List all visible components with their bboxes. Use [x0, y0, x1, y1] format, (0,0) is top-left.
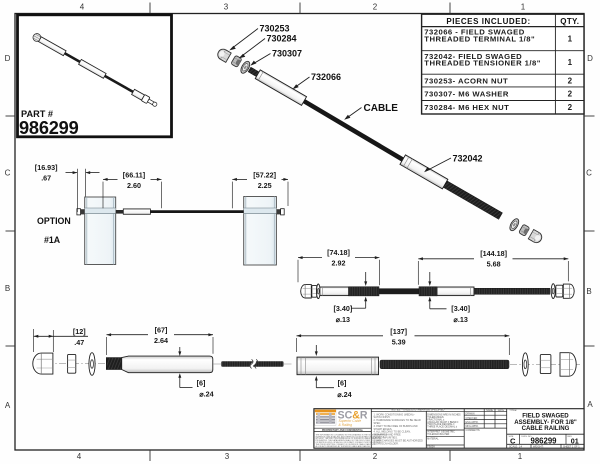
- svg-text:[74.18]: [74.18]: [327, 248, 350, 257]
- svg-text:THREADED TERMINAL 1/8": THREADED TERMINAL 1/8": [424, 34, 535, 43]
- svg-text:2: 2: [568, 76, 573, 85]
- svg-text:2: 2: [373, 452, 378, 461]
- svg-text:SCALE: 1:4: SCALE: 1:4: [509, 446, 523, 449]
- svg-text:5.39: 5.39: [392, 337, 406, 346]
- svg-text:MFG APPR.: MFG APPR.: [466, 425, 479, 428]
- svg-text:730253: 730253: [260, 24, 290, 34]
- svg-text:2.64: 2.64: [154, 336, 168, 345]
- svg-text:C: C: [5, 169, 11, 178]
- svg-text:5.68: 5.68: [487, 260, 501, 269]
- svg-text:⌀.24: ⌀.24: [337, 390, 351, 399]
- svg-text:730253- ACORN NUT: 730253- ACORN NUT: [424, 76, 508, 85]
- svg-text:[144.18]: [144.18]: [480, 249, 507, 258]
- svg-text:2: 2: [568, 90, 573, 99]
- svg-text:⌀.13: ⌀.13: [336, 315, 350, 324]
- svg-text:2: 2: [568, 103, 573, 112]
- svg-text:D: D: [587, 54, 593, 63]
- svg-text:1: 1: [521, 3, 526, 12]
- svg-text:1: 1: [568, 58, 573, 67]
- svg-text:PROPRIETARY AND CONFIDENTIAL: PROPRIETARY AND CONFIDENTIAL: [322, 429, 364, 432]
- svg-text:CABLE: CABLE: [364, 103, 399, 114]
- svg-text:NOTES: - UNLESS OTHERWISE SPEC: NOTES: - UNLESS OTHERWISE SPECIFIED: [391, 408, 444, 412]
- svg-text:[67]: [67]: [155, 326, 168, 335]
- svg-text:2.25: 2.25: [258, 181, 272, 190]
- svg-text:1: 1: [568, 34, 573, 43]
- svg-text:CHECKED: CHECKED: [466, 417, 478, 420]
- svg-text:01: 01: [571, 436, 579, 445]
- svg-text:WEIGHT:: WEIGHT:: [533, 446, 544, 449]
- svg-text:C: C: [510, 437, 516, 446]
- svg-text:.67: .67: [41, 174, 51, 183]
- svg-text:3: 3: [224, 3, 229, 12]
- svg-text:732066: 732066: [311, 72, 341, 82]
- svg-text:FINISH: FINISH: [427, 446, 435, 448]
- svg-text:CABLE RAILING: CABLE RAILING: [522, 425, 570, 432]
- svg-text:TITLE:: TITLE:: [509, 408, 517, 412]
- svg-text:[137]: [137]: [390, 327, 407, 336]
- svg-text:COMMENTS:: COMMENTS:: [466, 429, 481, 432]
- svg-text:A: A: [5, 401, 11, 410]
- svg-text:D: D: [5, 54, 11, 63]
- svg-text:C: C: [586, 169, 592, 178]
- svg-text:⌀.13: ⌀.13: [454, 315, 468, 324]
- svg-text:& Railing: & Railing: [339, 423, 353, 427]
- svg-text:TOLERANCING PER:: TOLERANCING PER:: [427, 433, 450, 436]
- svg-text:THREADED TENSIONER 1/8": THREADED TENSIONER 1/8": [424, 59, 541, 68]
- svg-text:730284: 730284: [267, 34, 297, 44]
- svg-text:DATE: DATE: [498, 409, 505, 412]
- svg-text:[6]: [6]: [197, 378, 206, 387]
- svg-text:DRAWN: DRAWN: [466, 413, 475, 416]
- svg-text:[6]: [6]: [338, 378, 347, 387]
- svg-text:3: 3: [225, 452, 230, 461]
- svg-text:OPTION: OPTION: [37, 216, 71, 226]
- svg-text:BY AN ECN HOLDER.: BY AN ECN HOLDER.: [374, 442, 399, 445]
- svg-text:[3.40]: [3.40]: [451, 304, 470, 313]
- svg-text:[12]: [12]: [73, 327, 86, 336]
- svg-text:732042: 732042: [453, 154, 483, 164]
- svg-text:QTY.: QTY.: [560, 17, 579, 26]
- svg-text:ENG APPR.: ENG APPR.: [466, 421, 479, 424]
- svg-text:1: 1: [518, 452, 523, 461]
- svg-text:4: 4: [77, 452, 82, 461]
- svg-text:730307- M6 WASHER: 730307- M6 WASHER: [424, 90, 509, 99]
- svg-text:[57.22]: [57.22]: [253, 170, 276, 179]
- svg-text:[66.11]: [66.11]: [123, 170, 145, 179]
- svg-text:2.60: 2.60: [127, 181, 141, 190]
- svg-text:730307: 730307: [272, 49, 302, 59]
- svg-text:B: B: [586, 287, 591, 296]
- svg-text:4: 4: [80, 3, 85, 12]
- svg-text:.47: .47: [74, 338, 84, 347]
- svg-text:#1A: #1A: [44, 235, 61, 245]
- svg-text:2: 2: [373, 3, 378, 12]
- svg-text:[3.40]: [3.40]: [334, 304, 353, 313]
- svg-text:B: B: [5, 284, 10, 293]
- svg-text:THREE PLACE DECIMAL ±: THREE PLACE DECIMAL ±: [427, 426, 457, 429]
- svg-text:A: A: [587, 400, 593, 409]
- svg-text:986299: 986299: [530, 437, 557, 446]
- svg-text:⌀.24: ⌀.24: [199, 390, 213, 399]
- svg-text:SHEET 1 OF 1: SHEET 1 OF 1: [563, 446, 580, 449]
- svg-text:986299: 986299: [19, 118, 79, 138]
- svg-text:2.92: 2.92: [332, 259, 346, 268]
- svg-text:PIECES INCLUDED:: PIECES INCLUDED:: [446, 17, 530, 26]
- svg-text:ALL RIGHTS RESERVED BY SUPERIO: ALL RIGHTS RESERVED BY SUPERIOR CABLE AN…: [316, 445, 371, 448]
- svg-text:730284- M6 HEX NUT: 730284- M6 HEX NUT: [424, 103, 509, 112]
- svg-text:NAME: NAME: [486, 409, 493, 412]
- svg-text:MATERIAL: MATERIAL: [427, 437, 439, 440]
- svg-text:[16.93]: [16.93]: [35, 163, 58, 172]
